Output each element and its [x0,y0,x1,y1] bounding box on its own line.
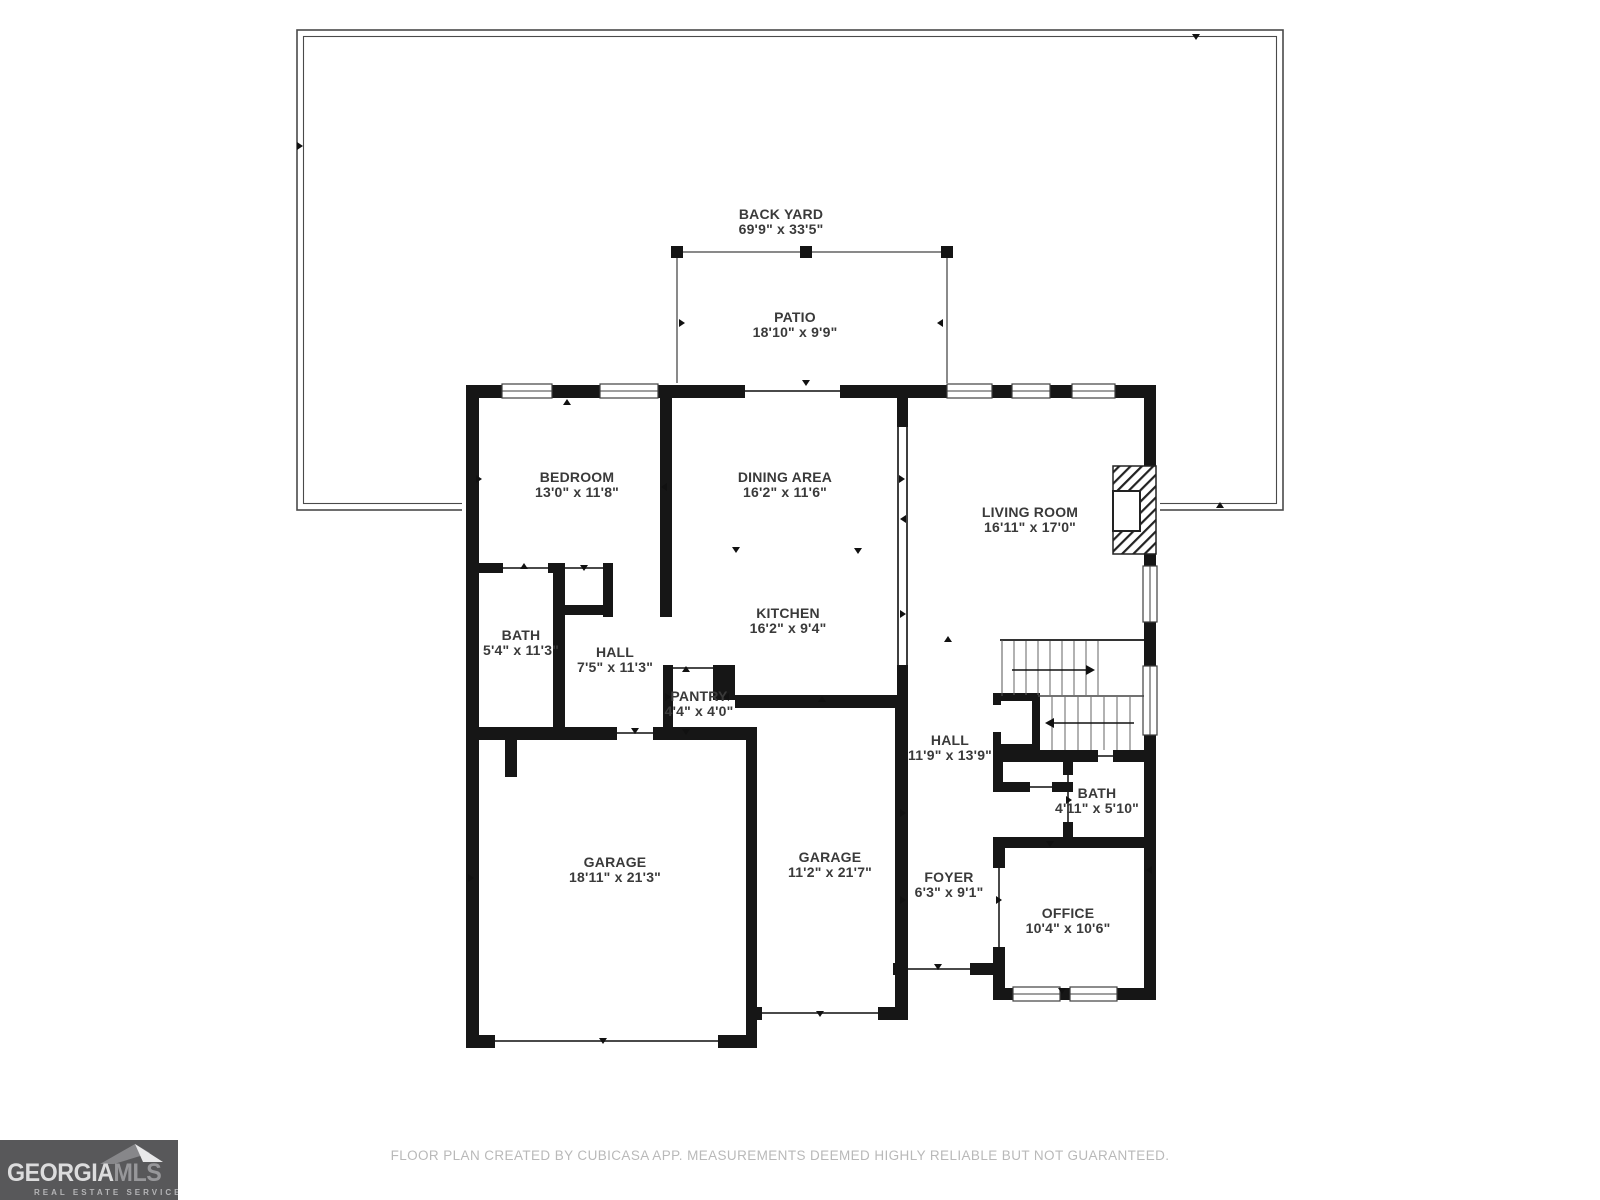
fireplace [1113,466,1156,554]
room-dims: 6'3" x 9'1" [915,885,984,900]
room-dims: 11'9" x 13'9" [908,748,992,763]
room-label-bath-2: BATH 4'11" x 5'10" [1055,786,1139,816]
room-dims: 5'4" x 11'3" [483,643,559,658]
room-label-foyer: FOYER 6'3" x 9'1" [915,870,984,900]
room-label-patio: PATIO 18'10" x 9'9" [753,310,838,340]
room-label-kitchen: KITCHEN 16'2" x 9'4" [750,606,827,636]
room-name: GARAGE [788,850,872,865]
room-label-garage-1: GARAGE 18'11" x 21'3" [569,855,661,885]
room-name: KITCHEN [750,606,827,621]
room-dims: 7'5" x 11'3" [577,660,653,675]
room-name: BACK YARD [739,207,824,222]
room-name: PATIO [753,310,838,325]
room-name: BEDROOM [535,470,619,485]
room-label-living-room: LIVING ROOM 16'11" x 17'0" [982,505,1078,535]
room-dims: 4'4" x 4'0" [665,704,734,719]
room-name: FOYER [915,870,984,885]
room-name: GARAGE [569,855,661,870]
room-name: PANTRY [665,689,734,704]
room-name: LIVING ROOM [982,505,1078,520]
room-label-pantry: PANTRY 4'4" x 4'0" [665,689,734,719]
logo-wordmark: GEORGIAMLS [7,1159,161,1188]
room-label-hall-2: HALL 11'9" x 13'9" [908,733,992,763]
room-label-bedroom: BEDROOM 13'0" x 11'8" [535,470,619,500]
floor-plan-canvas: BACK YARD 69'9" x 33'5" PATIO 18'10" x 9… [0,0,1600,1200]
room-dims: 18'11" x 21'3" [569,870,661,885]
room-dims: 16'2" x 11'6" [738,485,832,500]
room-dims: 11'2" x 21'7" [788,865,872,880]
room-dims: 69'9" x 33'5" [739,222,824,237]
room-label-dining-area: DINING AREA 16'2" x 11'6" [738,470,832,500]
room-label-office: OFFICE 10'4" x 10'6" [1026,906,1111,936]
room-name: OFFICE [1026,906,1111,921]
room-label-hall-1: HALL 7'5" x 11'3" [577,645,653,675]
room-label-bath-1: BATH 5'4" x 11'3" [483,628,559,658]
disclaimer-text: FLOOR PLAN CREATED BY CUBICASA APP. MEAS… [391,1148,1170,1163]
georgia-mls-logo: GEORGIAMLS REAL ESTATE SERVICES [0,1140,178,1200]
room-label-garage-2: GARAGE 11'2" x 21'7" [788,850,872,880]
logo-text-georgia: GEORGIA [7,1159,114,1187]
room-dims: 16'11" x 17'0" [982,520,1078,535]
room-label-back-yard: BACK YARD 69'9" x 33'5" [739,207,824,237]
room-dims: 10'4" x 10'6" [1026,921,1111,936]
room-name: HALL [577,645,653,660]
room-dims: 16'2" x 9'4" [750,621,827,636]
room-name: BATH [483,628,559,643]
logo-tagline: REAL ESTATE SERVICES [34,1188,178,1197]
room-name: DINING AREA [738,470,832,485]
room-dims: 13'0" x 11'8" [535,485,619,500]
room-name: BATH [1055,786,1139,801]
room-name: HALL [908,733,992,748]
room-dims: 4'11" x 5'10" [1055,801,1139,816]
room-dims: 18'10" x 9'9" [753,325,838,340]
logo-text-mls: MLS [114,1159,162,1187]
floor-plan-drawing [0,0,1600,1200]
